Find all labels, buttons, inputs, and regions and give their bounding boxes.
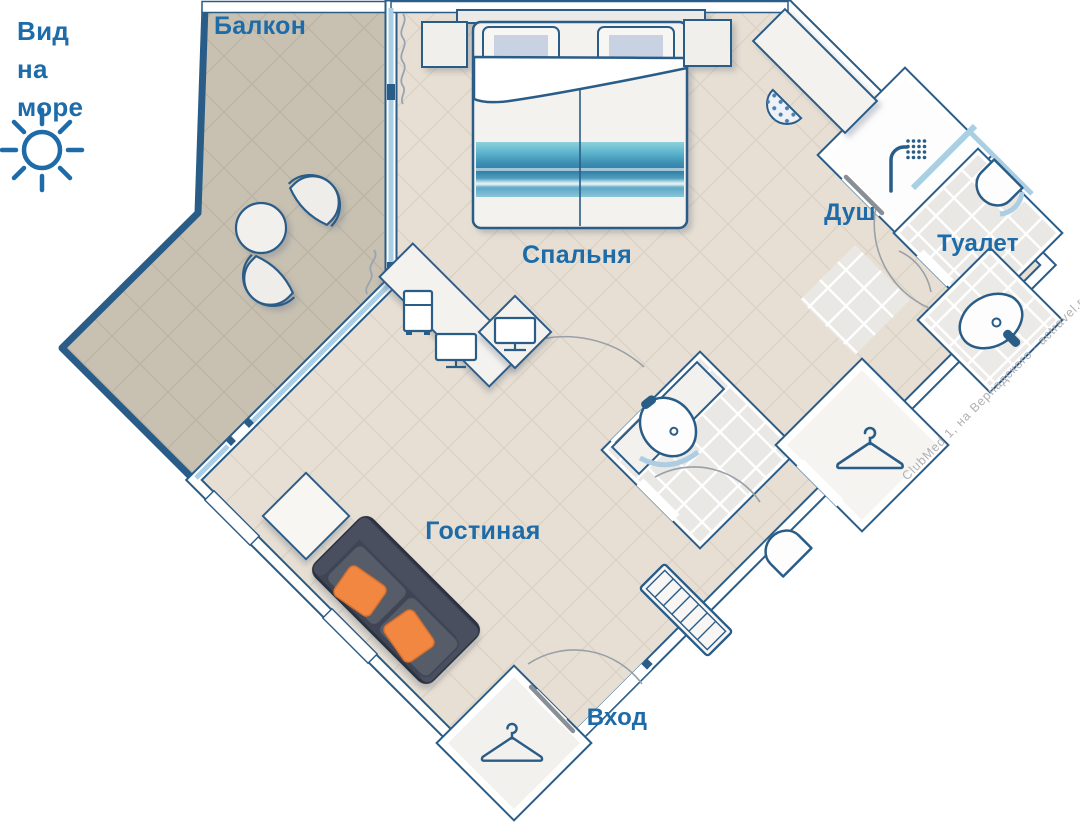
sea-view-line3: море: [17, 92, 83, 122]
room-label-toilet: Туалет: [937, 230, 1019, 257]
room-label-entrance: Вход: [587, 704, 648, 731]
room-label-living: Гостиная: [425, 517, 540, 545]
round-table: [236, 203, 286, 253]
nightstand: [684, 20, 731, 66]
room-label-bedroom: Спальня: [522, 241, 632, 269]
mini-fridge-icon: [404, 291, 432, 335]
sea-view-line1: Вид: [17, 16, 69, 46]
sea-view-line2: на: [17, 54, 48, 84]
floor-plan-screenshot: Балкон Спальня Душ Туалет Гостиная Вход …: [0, 0, 1080, 823]
room-label-shower: Душ: [824, 199, 876, 226]
room-label-balcony: Балкон: [214, 12, 306, 40]
nightstand: [422, 22, 467, 67]
balcony-top-wall: [202, 2, 391, 13]
